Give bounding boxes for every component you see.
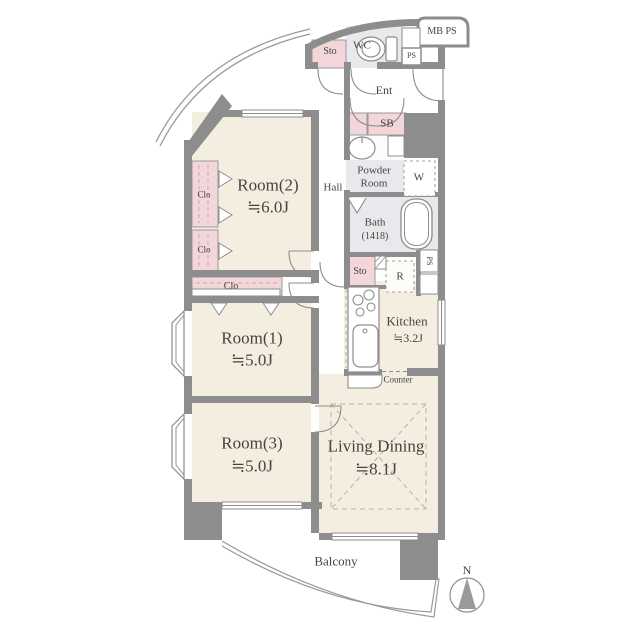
room1-area-label: ≒5.0J xyxy=(231,352,273,369)
closet1-label: Clo xyxy=(197,191,210,200)
wc-label: WC xyxy=(353,41,371,52)
room3-name-label: Room(3) xyxy=(221,435,282,452)
washer-label: W xyxy=(414,173,424,184)
living-dining-name-label: Living Dining xyxy=(328,438,425,455)
washbasin-icon xyxy=(349,137,375,159)
refrigerator-label: R xyxy=(396,272,403,283)
bathtub-icon xyxy=(401,199,432,249)
closet2-label: Clo xyxy=(197,246,210,255)
kitchen-counter xyxy=(348,287,379,372)
ps-side-label: PS xyxy=(425,257,433,266)
basin-cabinet xyxy=(388,136,404,156)
room1-name-label: Room(1) xyxy=(221,330,282,347)
living-dining-area-label: ≒8.1J xyxy=(355,461,397,478)
compass-icon xyxy=(450,578,484,612)
hall-label: Hall xyxy=(324,183,343,194)
kitchen-name-label: Kitchen xyxy=(386,315,427,328)
powder-room-label-2: Room xyxy=(361,179,388,190)
bath-size-label: (1418) xyxy=(362,232,389,242)
sto-top-label: Sto xyxy=(323,47,336,57)
meter-box xyxy=(375,256,386,269)
north-label: N xyxy=(463,564,472,576)
room2-area-label: ≒6.0J xyxy=(247,199,289,216)
ps-top-label: PS xyxy=(407,52,416,60)
bay-window-room1 xyxy=(172,311,184,376)
kitchen-area-label: ≒3.2J xyxy=(393,332,423,344)
closet3-label: Clo xyxy=(224,282,238,292)
counter-label: Counter xyxy=(384,376,413,385)
mbps-label: MB PS xyxy=(427,27,456,37)
kitchen-sink-icon xyxy=(353,325,378,367)
balcony-label: Balcony xyxy=(314,555,357,568)
powder-room-label-1: Powder xyxy=(357,166,391,177)
entrance-label: Ent xyxy=(376,84,393,96)
room3-area-label: ≒5.0J xyxy=(231,458,273,475)
shoe-box-label: SB xyxy=(380,119,393,130)
sto-top-door-arc xyxy=(318,69,343,94)
floorplan-page: Sto WC PS MB PS Ent SB Powder Room W Bat… xyxy=(0,0,640,640)
sto-mid-door-arc xyxy=(320,262,345,287)
bay-window-room3 xyxy=(172,414,184,479)
floorplan-graphic xyxy=(0,0,640,640)
sto-mid-label: Sto xyxy=(353,267,366,277)
room2-name-label: Room(2) xyxy=(237,177,298,194)
bath-label: Bath xyxy=(365,218,386,229)
